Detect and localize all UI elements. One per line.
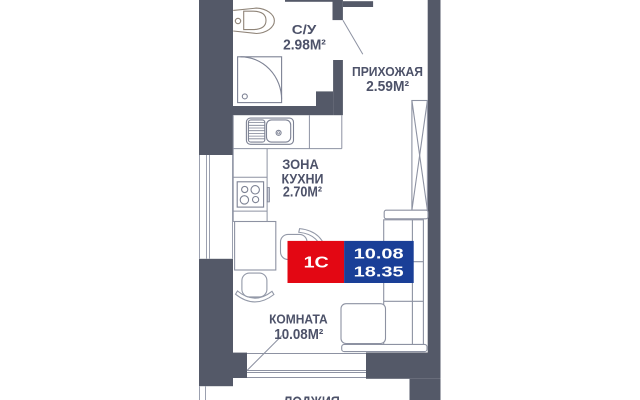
svg-text:2.59М²: 2.59М² [366,79,409,95]
svg-text:10.08М²: 10.08М² [274,327,323,343]
svg-text:2.98М²: 2.98М² [283,38,326,54]
svg-text:10.08: 10.08 [354,247,404,263]
svg-text:ЛОДЖИЯ: ЛОДЖИЯ [284,393,340,400]
svg-text:18.35: 18.35 [354,265,404,281]
svg-text:2.70М²: 2.70М² [283,185,322,201]
svg-text:1С: 1С [304,255,330,272]
svg-text:ПРИХОЖАЯ: ПРИХОЖАЯ [352,64,423,79]
svg-text:ЗОНА: ЗОНА [282,156,319,172]
svg-text:КОМНАТА: КОМНАТА [269,312,328,327]
svg-text:С/У: С/У [292,22,318,37]
